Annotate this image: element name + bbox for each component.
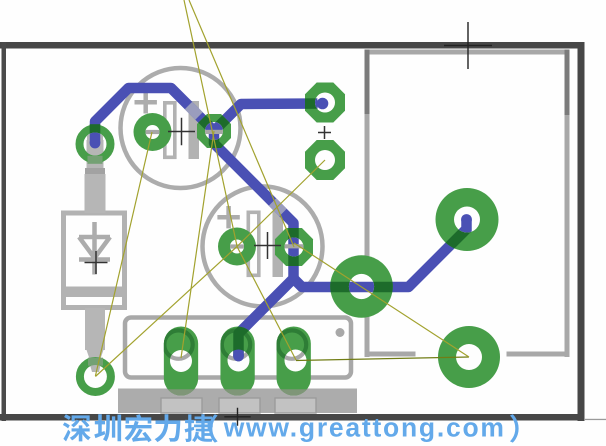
svg-text:www.greattong.com: www.greattong.com (223, 413, 506, 443)
